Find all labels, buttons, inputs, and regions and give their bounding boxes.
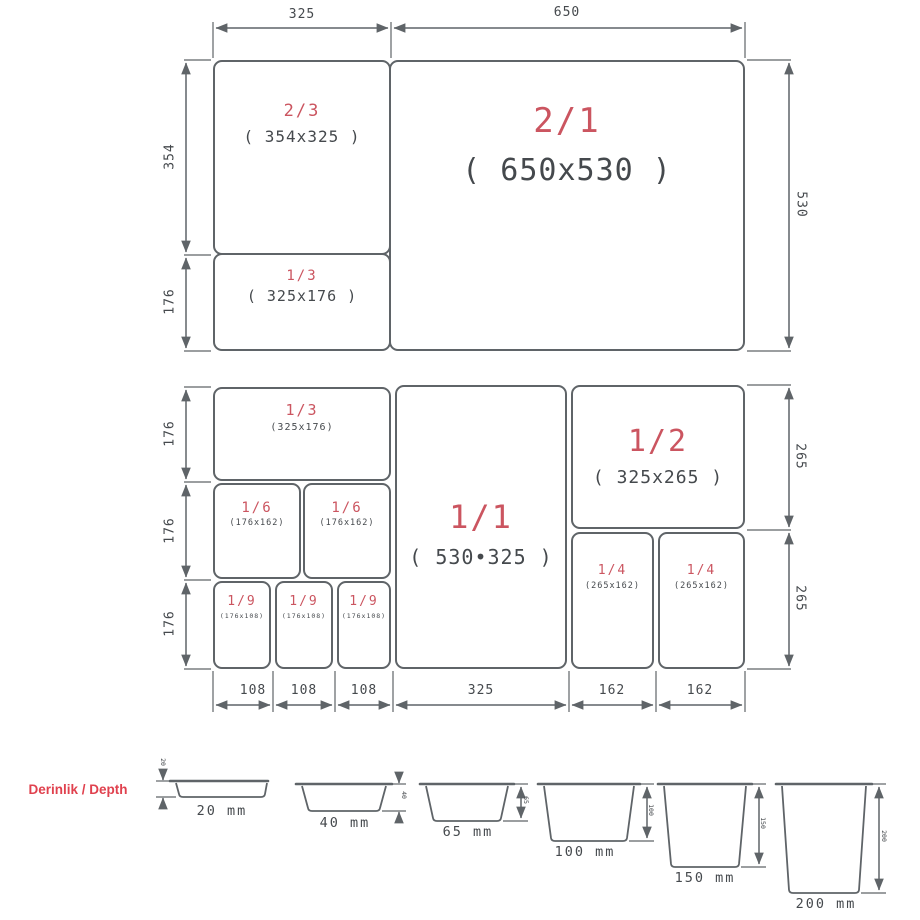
size-label: (176x162) <box>319 518 374 529</box>
fraction-label: 2/3 <box>284 102 321 122</box>
pan-box-2-3: 2/3 ( 354x325 ) <box>213 60 391 255</box>
depth-label-40mm: 40 mm <box>305 815 385 831</box>
depth-row-title: Derinlik / Depth <box>14 782 142 797</box>
pan-box-1-9-a: 1/9 (176x108) <box>213 581 271 669</box>
dim-right-265-a: 265 <box>793 437 808 477</box>
fraction-label: 1/6 <box>331 500 362 516</box>
depth-label-100mm: 100 mm <box>545 844 625 860</box>
dim-bottom-325: 325 <box>441 683 521 698</box>
depth-tick-200: 200 <box>880 826 888 846</box>
dim-bottom-162-a: 162 <box>572 683 652 698</box>
size-label: (176x108) <box>342 612 386 620</box>
depth-tick-65: 65 <box>522 790 530 810</box>
dim-left-176-a: 176 <box>163 414 178 454</box>
size-label: (265x162) <box>674 581 729 592</box>
pan-box-1-9-c: 1/9 (176x108) <box>337 581 391 669</box>
fraction-label: 1/9 <box>289 595 318 610</box>
dim-left-354: 354 <box>163 137 178 177</box>
dim-left-176: 176 <box>163 282 178 322</box>
fraction-label: 1/4 <box>598 564 627 579</box>
size-label: ( 325x265 ) <box>593 466 723 489</box>
depth-tick-100: 100 <box>647 800 655 820</box>
size-label: ( 325x176 ) <box>247 287 357 307</box>
dim-left-176-b: 176 <box>163 511 178 551</box>
dim-bottom-162-b: 162 <box>660 683 740 698</box>
fraction-label: 1/9 <box>349 595 378 610</box>
size-label: ( 530•325 ) <box>409 544 552 570</box>
pan-box-1-4-a: 1/4 (265x162) <box>571 532 654 669</box>
pan-box-1-6-a: 1/6 (176x162) <box>213 483 301 579</box>
size-label: (176x108) <box>220 612 264 620</box>
depth-label-65mm: 65 mm <box>428 824 508 840</box>
fraction-label: 1/3 <box>286 268 317 284</box>
pan-box-1-4-b: 1/4 (265x162) <box>658 532 745 669</box>
pan-box-1-6-b: 1/6 (176x162) <box>303 483 391 579</box>
fraction-label: 2/1 <box>533 102 600 141</box>
size-label: (325x176) <box>270 421 333 434</box>
fraction-label: 1/6 <box>241 500 272 516</box>
size-label: (265x162) <box>585 581 640 592</box>
pan-box-1-2: 1/2 ( 325x265 ) <box>571 385 745 529</box>
pan-box-1-3-mid: 1/3 (325x176) <box>213 387 391 481</box>
pan-box-2-1: 2/1 ( 650x530 ) <box>389 60 745 351</box>
depth-label-150mm: 150 mm <box>665 870 745 886</box>
size-label: (176x162) <box>229 518 284 529</box>
dim-top-650: 650 <box>527 5 607 20</box>
dim-bottom-108-c: 108 <box>324 683 404 698</box>
fraction-label: 1/3 <box>285 402 318 419</box>
fraction-label: 1/9 <box>227 595 256 610</box>
pan-box-1-1: 1/1 ( 530•325 ) <box>395 385 567 669</box>
pan-profile-200mm <box>776 784 886 893</box>
pan-profile-150mm <box>658 784 766 867</box>
pan-profile-65mm <box>420 784 528 821</box>
dim-left-176-c: 176 <box>163 604 178 644</box>
pan-box-1-9-b: 1/9 (176x108) <box>275 581 333 669</box>
size-label: ( 354x325 ) <box>244 127 361 148</box>
depth-tick-20: 20 <box>159 752 167 772</box>
pan-profile-100mm <box>538 784 654 841</box>
depth-tick-40: 40 <box>400 785 408 805</box>
dim-right-265-b: 265 <box>793 579 808 619</box>
depth-label-200mm: 200 mm <box>786 896 866 912</box>
dim-right-530: 530 <box>794 185 809 225</box>
fraction-label: 1/2 <box>628 425 688 460</box>
depth-tick-150: 150 <box>759 813 767 833</box>
fraction-label: 1/1 <box>449 499 513 536</box>
fraction-label: 1/4 <box>687 564 716 579</box>
dim-top-325: 325 <box>262 7 342 22</box>
pan-box-1-3-top: 1/3 ( 325x176 ) <box>213 253 391 351</box>
size-label: (176x108) <box>282 612 326 620</box>
size-label: ( 650x530 ) <box>462 151 672 190</box>
gn-pan-size-diagram: 2/3 ( 354x325 ) 1/3 ( 325x176 ) 2/1 ( 65… <box>0 0 920 920</box>
depth-label-20mm: 20 mm <box>182 803 262 819</box>
